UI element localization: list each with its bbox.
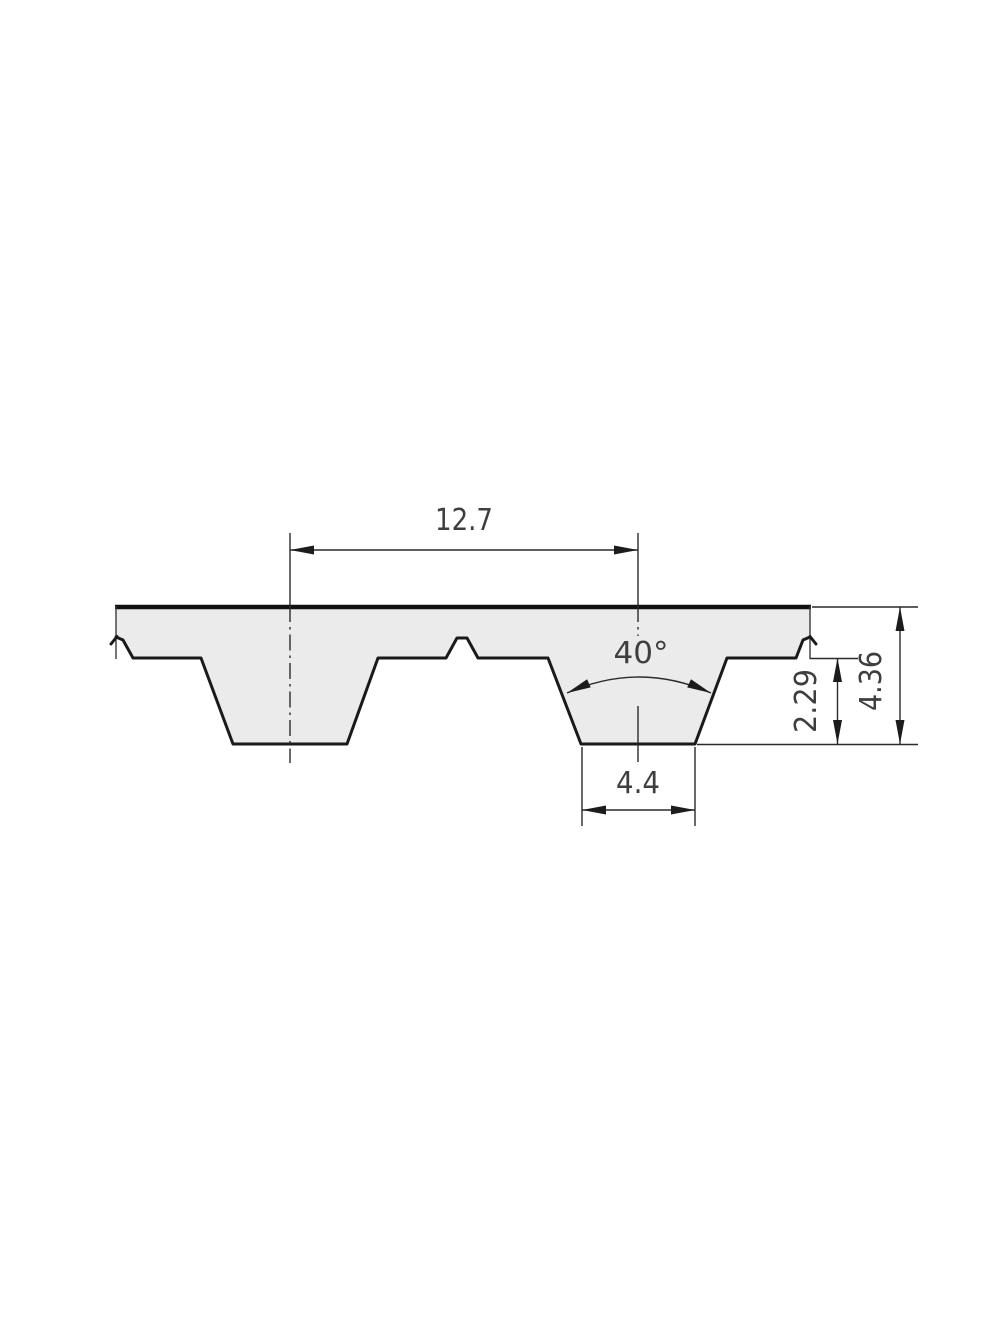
pitch-arrow-right-icon [614,546,638,555]
drawing-canvas: 12.7 40° 4.4 2.29 [0,0,1000,1333]
angle-label: 40° [614,636,669,671]
depth-arrow-top-icon [833,658,842,682]
thickness-arrow-bottom-icon [896,720,905,744]
belt-drawing-svg: 12.7 40° 4.4 2.29 [0,0,1000,1333]
pitch-label: 12.7 [435,503,493,538]
right-break-mark [810,637,816,645]
width-arrow-left-icon [582,806,606,815]
belt-thickness-label: 4.36 [854,651,889,711]
pitch-dimension: 12.7 [290,503,638,555]
thickness-arrow-top-icon [896,607,905,631]
tooth-width-label: 4.4 [616,766,660,801]
pitch-arrow-left-icon [290,546,314,555]
depth-arrow-bottom-icon [833,720,842,744]
belt-section-fill [116,607,810,744]
belt-thickness-dimension: 4.36 [812,607,918,744]
width-arrow-right-icon [671,806,695,815]
tooth-depth-label: 2.29 [789,669,824,733]
